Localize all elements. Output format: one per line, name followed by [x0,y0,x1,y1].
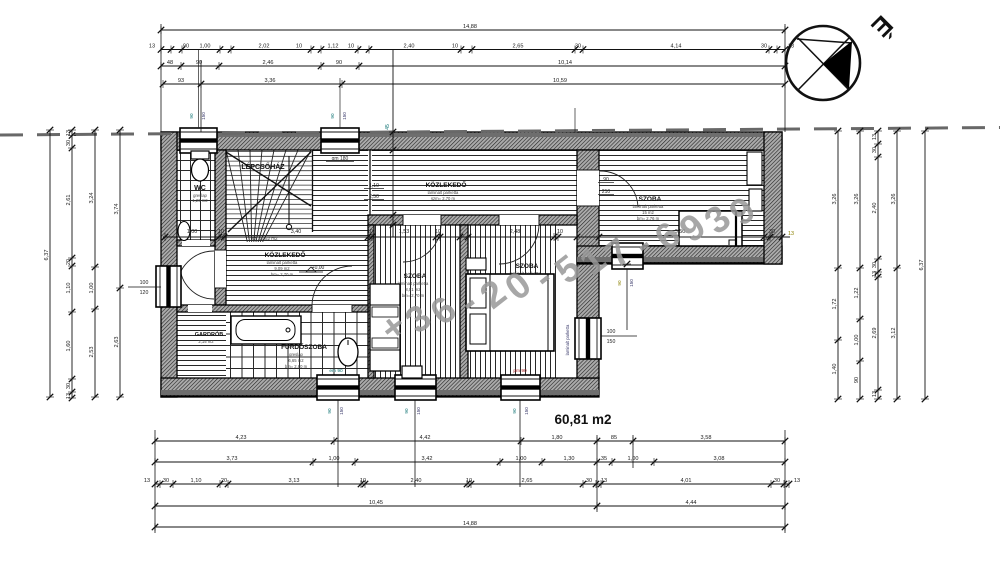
svg-text:SZOBA: SZOBA [404,273,427,280]
svg-text:4,23: 4,23 [236,435,247,441]
svg-text:90: 90 [854,377,860,383]
svg-text:100: 100 [607,329,616,335]
svg-text:30: 30 [774,478,780,484]
svg-text:90: 90 [404,408,409,414]
svg-text:1,30: 1,30 [564,456,575,462]
svg-text:1,40: 1,40 [832,364,838,375]
svg-text:bm= 2,60 m: bm= 2,60 m [285,364,308,369]
svg-text:10: 10 [452,44,458,50]
svg-text:13: 13 [872,271,878,277]
svg-text:6,65 m2: 6,65 m2 [288,358,304,363]
svg-text:10: 10 [435,229,441,235]
svg-text:2,53: 2,53 [89,347,95,358]
svg-text:10: 10 [367,229,373,235]
svg-text:FÜRDŐSZOBA: FÜRDŐSZOBA [281,342,327,351]
svg-text:1,00: 1,00 [329,456,340,462]
svg-text:2,65: 2,65 [522,478,533,484]
svg-text:GARDRÓB: GARDRÓB [195,330,223,338]
svg-text:90: 90 [327,408,332,414]
svg-text:bm= 2,70 m: bm= 2,70 m [271,272,294,277]
svg-text:10: 10 [557,229,563,235]
svg-text:85: 85 [611,435,617,441]
svg-text:1,00: 1,00 [187,229,198,235]
svg-text:1,60: 1,60 [66,341,72,352]
svg-text:1,12: 1,12 [328,44,339,50]
svg-text:3,12: 3,12 [891,328,897,339]
svg-text:13: 13 [788,231,794,237]
svg-text:1,10: 1,10 [369,183,379,189]
svg-text:LÉPCSŐHÁZ: LÉPCSŐHÁZ [241,162,285,171]
svg-text:150: 150 [201,112,206,120]
svg-text:30: 30 [66,383,72,389]
svg-text:10: 10 [296,44,302,50]
svg-text:90: 90 [603,177,609,183]
svg-text:14,88: 14,88 [463,521,477,527]
svg-text:30: 30 [769,229,775,235]
svg-text:2,15 m2: 2,15 m2 [198,339,214,344]
svg-text:2,69: 2,69 [872,328,878,339]
svg-text:90: 90 [189,113,194,119]
svg-text:30: 30 [575,44,581,50]
svg-text:laminalt parketta: laminalt parketta [633,204,664,209]
svg-text:150: 150 [342,112,347,120]
svg-text:pm 90: pm 90 [513,368,527,374]
svg-text:3,26: 3,26 [832,194,838,205]
svg-text:laminalt parketta: laminalt parketta [398,281,429,286]
svg-text:2,65: 2,65 [513,44,524,50]
svg-text:30: 30 [872,147,878,153]
svg-text:10: 10 [466,478,472,484]
svg-text:10: 10 [218,229,224,235]
svg-text:13: 13 [872,134,878,140]
svg-text:KÖZLEKEDŐ: KÖZLEKEDŐ [426,180,467,189]
svg-text:150: 150 [339,407,344,415]
svg-text:2,63: 2,63 [114,337,120,348]
svg-text:4,14: 4,14 [671,44,682,50]
svg-text:13: 13 [794,478,800,484]
svg-text:3,24: 3,24 [89,193,95,204]
svg-text:1,00: 1,00 [516,456,527,462]
svg-text:3,58: 3,58 [701,435,712,441]
svg-text:3,26: 3,26 [891,194,897,205]
svg-text:9,09 m2: 9,09 m2 [274,266,290,271]
svg-text:10: 10 [360,478,366,484]
svg-text:KÖZLEKEDŐ: KÖZLEKEDŐ [265,250,306,259]
svg-text:szm= 2,70 m: szm= 2,70 m [431,196,456,201]
svg-text:90: 90 [330,113,335,119]
svg-text:48: 48 [167,60,173,66]
svg-text:120: 120 [140,290,149,296]
svg-text:2,50: 2,50 [369,194,379,200]
svg-text:150: 150 [607,339,616,345]
svg-text:30: 30 [761,44,767,50]
svg-text:laminalt parketta: laminalt parketta [565,324,570,355]
svg-text:15 m2: 15 m2 [642,210,654,215]
svg-text:6,37: 6,37 [919,260,925,271]
svg-text:4,44: 4,44 [686,500,697,506]
svg-text:SZOBA: SZOBA [639,196,662,203]
svg-text:20: 20 [66,259,72,265]
svg-text:3,26: 3,26 [854,194,860,205]
svg-text:4,01: 4,01 [681,478,692,484]
svg-text:2,46: 2,46 [263,60,274,66]
svg-text:90: 90 [512,408,517,414]
svg-text:3,42: 3,42 [422,456,433,462]
svg-text:13: 13 [149,44,155,50]
svg-text:210: 210 [602,189,611,195]
svg-text:60,81 m2: 60,81 m2 [554,412,611,427]
svg-text:2,40: 2,40 [404,44,415,50]
svg-text:90: 90 [336,60,342,66]
svg-text:1,00: 1,00 [89,283,95,294]
svg-text:laminalt parketta: laminalt parketta [267,260,298,265]
svg-text:3,36: 3,36 [265,78,276,84]
svg-text:1,26 m2: 1,26 m2 [192,198,208,203]
svg-text:13: 13 [601,478,607,484]
svg-text:1,22: 1,22 [854,288,860,299]
svg-text:14,88: 14,88 [463,24,477,30]
svg-text:13: 13 [144,478,150,484]
svg-text:WC: WC [194,185,206,192]
svg-text:1,10: 1,10 [66,283,72,294]
svg-text:30: 30 [66,140,72,146]
svg-text:1,10: 1,10 [191,478,202,484]
svg-text:em 90: em 90 [329,368,343,374]
svg-text:2,40: 2,40 [872,203,878,214]
svg-text:10,59: 10,59 [553,78,567,84]
svg-text:30: 30 [586,478,592,484]
svg-text:13: 13 [872,391,878,397]
svg-text:3,13: 3,13 [289,478,300,484]
svg-text:laminalt parketta: laminalt parketta [428,190,459,195]
svg-text:1,80: 1,80 [552,435,563,441]
svg-text:1,53: 1,53 [399,229,410,235]
svg-text:90: 90 [617,280,622,286]
svg-text:8,01 m2: 8,01 m2 [405,287,421,292]
svg-text:30: 30 [163,478,169,484]
svg-text:3,08: 3,08 [714,456,725,462]
svg-text:150: 150 [524,407,529,415]
svg-text:3,73: 3,73 [227,456,238,462]
svg-text:10,14: 10,14 [558,60,572,66]
svg-text:2,40: 2,40 [411,478,422,484]
svg-text:6,37: 6,37 [44,250,50,261]
svg-text:10,45: 10,45 [369,500,383,506]
svg-text:10: 10 [348,44,354,50]
svg-text:gm 180: gm 180 [332,156,349,162]
svg-text:100: 100 [140,280,149,286]
svg-text:1,00: 1,00 [854,335,860,346]
svg-text:45: 45 [385,124,391,130]
svg-text:1,00: 1,00 [200,44,211,50]
svg-text:35: 35 [601,456,607,462]
svg-text:93: 93 [178,78,184,84]
svg-text:13: 13 [66,393,72,399]
svg-text:greslap: greslap [289,352,303,357]
svg-text:13: 13 [66,130,72,136]
svg-text:2,02: 2,02 [259,44,270,50]
svg-text:4,42: 4,42 [420,435,431,441]
svg-text:20: 20 [221,478,227,484]
svg-text:1,72: 1,72 [832,299,838,310]
svg-text:2,48: 2,48 [510,229,521,235]
svg-text:3,74: 3,74 [114,204,120,215]
svg-text:90: 90 [183,44,189,50]
svg-text:150: 150 [416,407,421,415]
svg-text:2,61: 2,61 [66,195,72,206]
svg-text:150: 150 [629,279,634,287]
svg-text:3,40: 3,40 [291,229,302,235]
svg-text:30: 30 [872,262,878,268]
